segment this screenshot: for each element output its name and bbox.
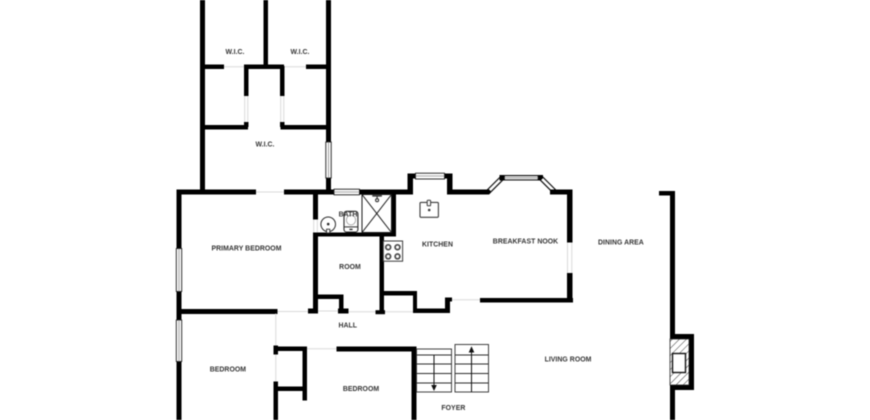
svg-text:BATH: BATH xyxy=(339,212,358,219)
svg-text:HALL: HALL xyxy=(339,323,358,330)
svg-text:W.I.C.: W.I.C. xyxy=(290,49,309,56)
svg-text:BEDROOM: BEDROOM xyxy=(210,367,247,374)
svg-text:ROOM: ROOM xyxy=(339,264,361,271)
svg-text:FOYER: FOYER xyxy=(441,405,465,412)
svg-text:KITCHEN: KITCHEN xyxy=(422,242,453,249)
svg-text:DINING AREA: DINING AREA xyxy=(598,240,644,247)
svg-text:W.I.C.: W.I.C. xyxy=(255,142,274,149)
svg-text:LIVING ROOM: LIVING ROOM xyxy=(545,357,592,364)
svg-text:W.I.C.: W.I.C. xyxy=(225,49,244,56)
svg-text:BREAKFAST NOOK: BREAKFAST NOOK xyxy=(493,239,558,246)
svg-text:BEDROOM: BEDROOM xyxy=(343,386,380,393)
svg-text:PRIMARY BEDROOM: PRIMARY BEDROOM xyxy=(211,246,281,253)
